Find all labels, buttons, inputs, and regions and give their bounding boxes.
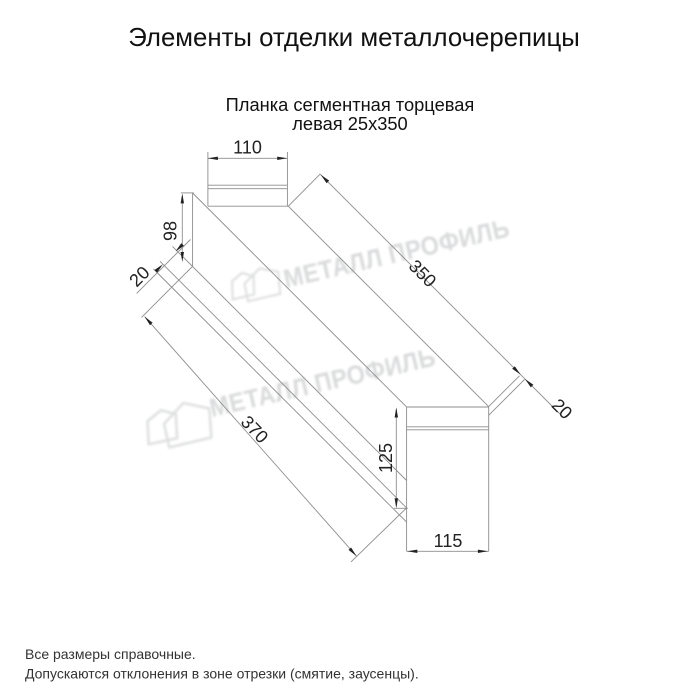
svg-text:Все размеры справочные.: Все размеры справочные. bbox=[25, 646, 196, 662]
svg-text:Допускаются отклонения в зоне: Допускаются отклонения в зоне отрезки (с… bbox=[25, 666, 419, 682]
svg-text:левая 25х350: левая 25х350 bbox=[292, 113, 407, 134]
svg-text:Элементы отделки металлочерепи: Элементы отделки металлочерепицы bbox=[128, 24, 580, 52]
svg-text:115: 115 bbox=[434, 531, 463, 551]
svg-text:110: 110 bbox=[233, 138, 262, 158]
svg-text:Планка сегментная торцевая: Планка сегментная торцевая bbox=[226, 94, 475, 115]
svg-text:98: 98 bbox=[161, 221, 181, 241]
svg-text:125: 125 bbox=[376, 443, 396, 473]
